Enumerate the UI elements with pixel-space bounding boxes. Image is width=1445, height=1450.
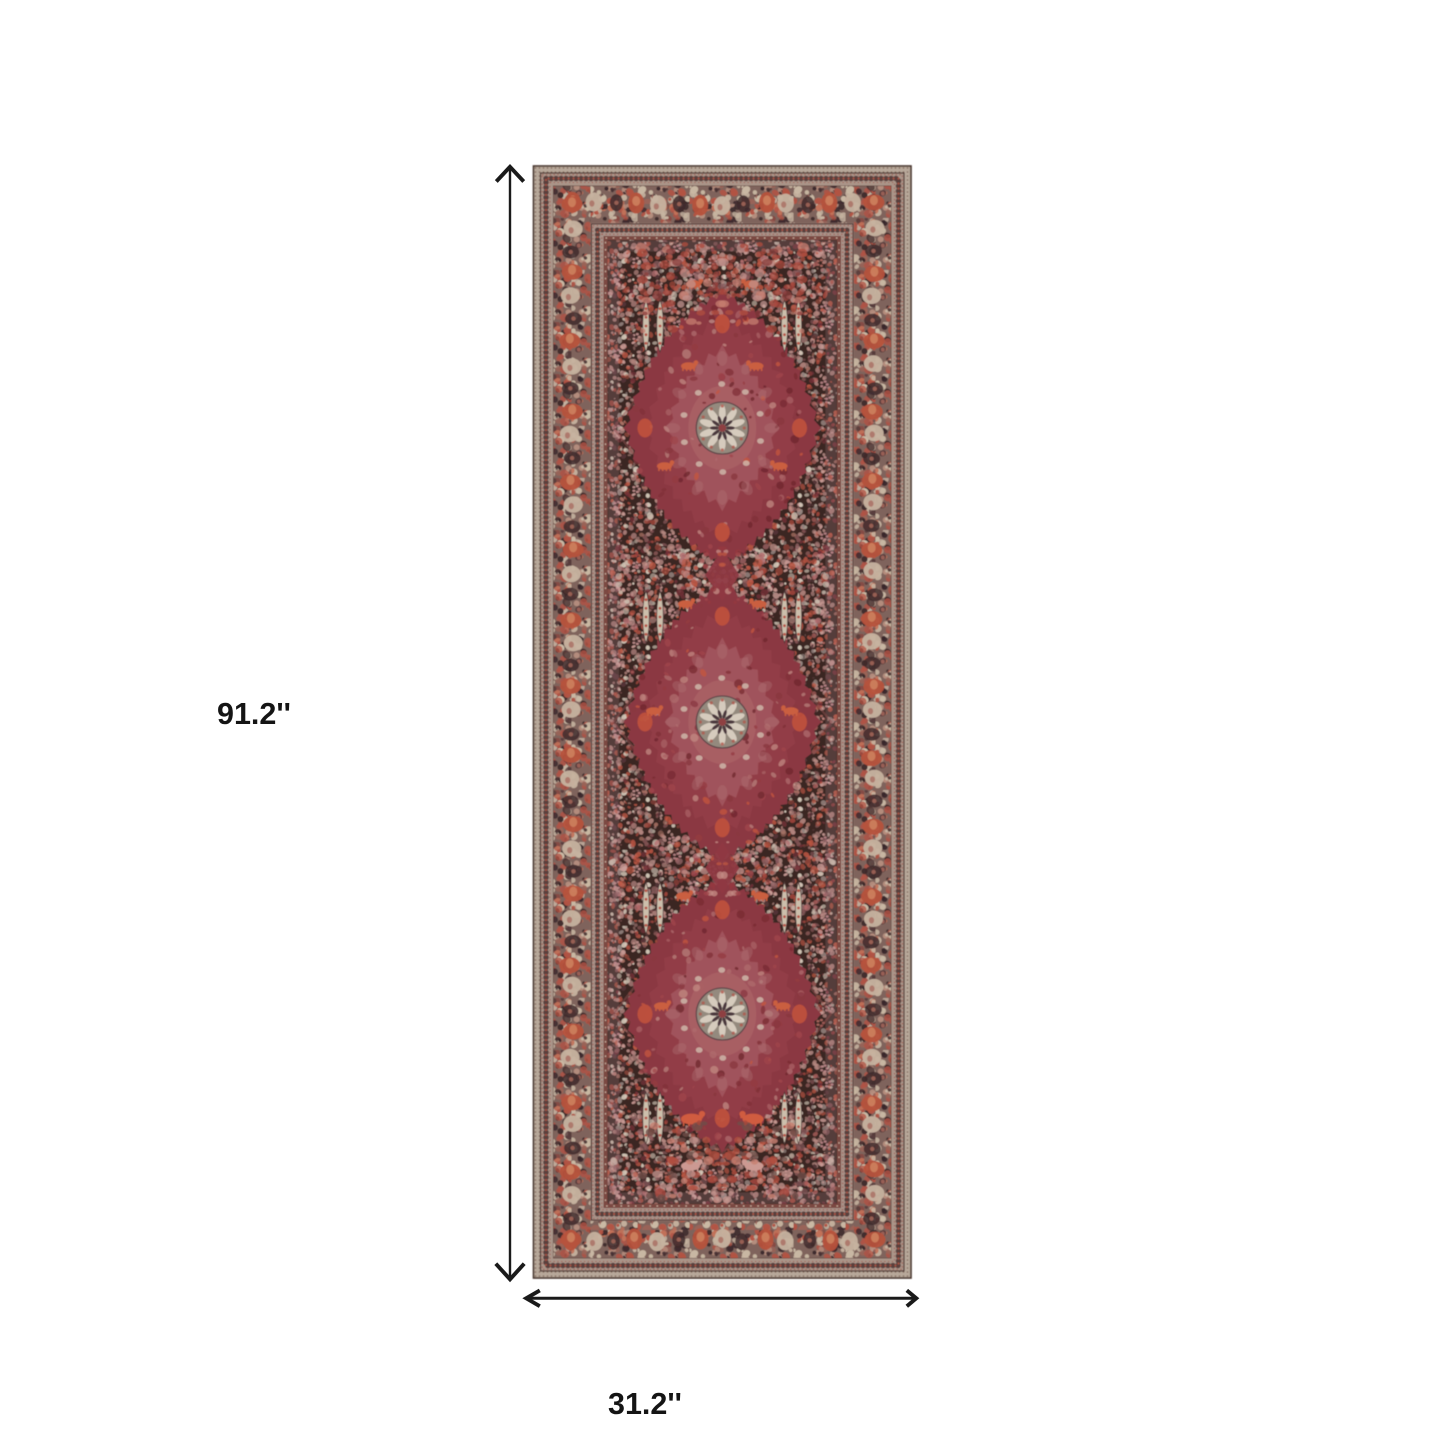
svg-text:31.2'': 31.2'' [608,1387,682,1421]
svg-text:91.2'': 91.2'' [217,697,291,731]
